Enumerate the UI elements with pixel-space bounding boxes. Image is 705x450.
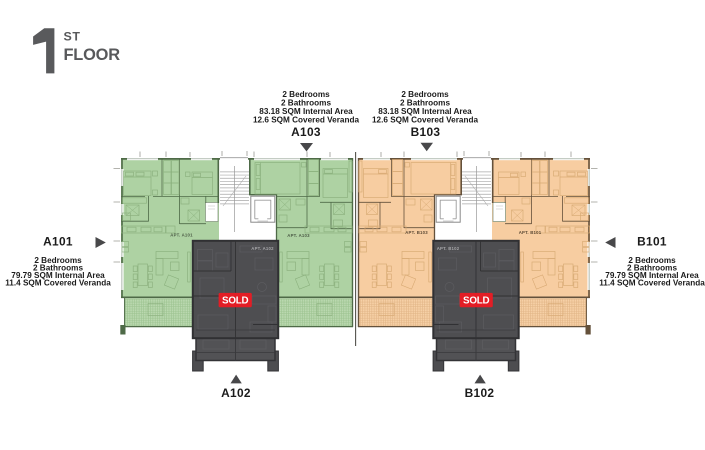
svg-text:11.4 SQM Covered Veranda: 11.4 SQM Covered Veranda: [599, 279, 705, 288]
svg-text:A102: A102: [221, 386, 251, 400]
svg-text:APT. B102: APT. B102: [437, 246, 460, 251]
svg-text:B102: B102: [465, 386, 495, 400]
svg-text:ST: ST: [64, 29, 81, 43]
svg-text:11.4 SQM Covered Veranda: 11.4 SQM Covered Veranda: [5, 279, 111, 288]
svg-text:12.6 SQM Covered Veranda: 12.6 SQM Covered Veranda: [253, 115, 359, 124]
svg-text:B101: B101: [637, 235, 667, 249]
svg-text:APT. A101: APT. A101: [170, 233, 193, 238]
svg-text:SOLD: SOLD: [222, 296, 249, 307]
svg-text:A103: A103: [291, 125, 321, 139]
svg-text:APT. A103: APT. A103: [287, 233, 310, 238]
svg-text:12.6 SQM Covered Veranda: 12.6 SQM Covered Veranda: [372, 115, 478, 124]
svg-text:A101: A101: [43, 235, 73, 249]
svg-text:APT. A102: APT. A102: [251, 246, 274, 251]
svg-text:APT. B103: APT. B103: [405, 230, 428, 235]
svg-text:B103: B103: [411, 125, 441, 139]
svg-text:APT. B101: APT. B101: [519, 230, 542, 235]
svg-text:FLOOR: FLOOR: [64, 46, 121, 64]
svg-text:SOLD: SOLD: [463, 296, 490, 307]
